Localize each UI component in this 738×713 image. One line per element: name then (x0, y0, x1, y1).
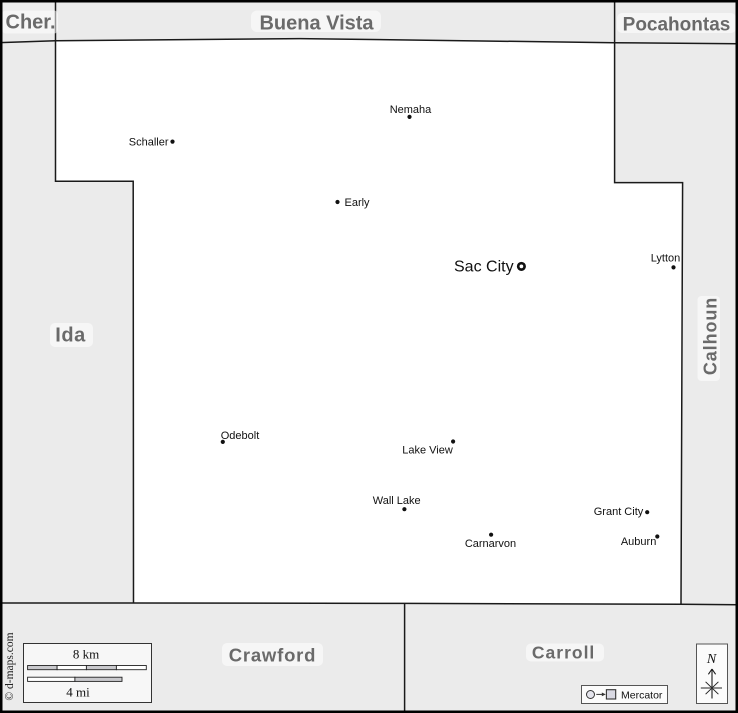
svg-text:Lytton: Lytton (651, 253, 681, 265)
svg-text:Pocahontas: Pocahontas (623, 15, 731, 36)
svg-text:© d-maps.com: © d-maps.com (4, 632, 16, 700)
svg-text:Grant City: Grant City (594, 506, 644, 518)
svg-text:Cher.: Cher. (6, 12, 56, 34)
svg-text:Lake View: Lake View (402, 444, 453, 456)
svg-text:Carroll: Carroll (532, 643, 595, 663)
svg-text:Buena Vista: Buena Vista (259, 12, 374, 34)
svg-text:Early: Early (345, 197, 371, 209)
svg-text:Mercator: Mercator (621, 689, 663, 701)
svg-text:Calhoun: Calhoun (701, 297, 721, 375)
svg-text:Odebolt: Odebolt (221, 430, 260, 442)
svg-text:Ida: Ida (55, 325, 86, 347)
svg-text:8 km: 8 km (73, 647, 99, 662)
svg-text:Carnarvon: Carnarvon (465, 538, 516, 550)
svg-text:N: N (706, 652, 717, 667)
svg-text:Nemaha: Nemaha (390, 104, 432, 116)
svg-text:Auburn: Auburn (621, 536, 656, 548)
svg-text:Sac City: Sac City (454, 258, 514, 275)
svg-text:Schaller: Schaller (129, 137, 169, 149)
svg-text:Wall Lake: Wall Lake (373, 495, 421, 507)
svg-text:Crawford: Crawford (229, 645, 317, 666)
svg-text:4 mi: 4 mi (66, 685, 90, 700)
